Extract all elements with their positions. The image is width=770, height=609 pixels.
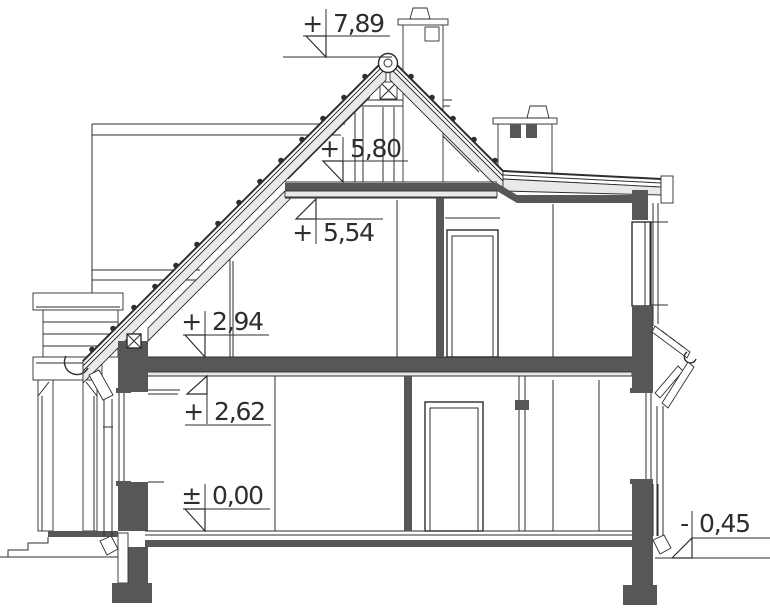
entrance-steps — [8, 537, 48, 557]
ground-floor-slab — [145, 531, 632, 547]
attic-interior — [436, 198, 498, 357]
chimney-cap — [410, 8, 430, 19]
left-wall — [116, 334, 148, 531]
level-marker-ridge: + 7,89 — [283, 9, 392, 57]
ring-beam — [632, 190, 648, 220]
cross-section-drawing: + 7,89 + 5,80 + 5,54 + 2,94 + 2,62 ± 0,0… — [0, 0, 770, 609]
ridge-tile — [379, 54, 398, 73]
partition-wall — [436, 198, 444, 357]
footing — [623, 585, 657, 605]
partition-wall — [404, 376, 412, 531]
roof-fascia — [661, 176, 673, 203]
level-sign: + — [302, 9, 322, 38]
perimeter-insulation — [118, 533, 128, 583]
cross-section-page: + 7,89 + 5,80 + 5,54 + 2,94 + 2,62 ± 0,0… — [0, 0, 770, 609]
level-sign: - — [680, 509, 688, 538]
level-marker-collar-beam: + 5,80 — [319, 134, 408, 182]
level-value: 7,89 — [333, 9, 384, 38]
level-marker-ground-floor: ± 0,00 — [181, 481, 270, 531]
right-window — [630, 388, 653, 484]
left-porch — [33, 293, 123, 531]
level-value: 5,54 — [323, 218, 374, 247]
floor-slab — [140, 357, 632, 376]
level-sign: + — [319, 134, 339, 163]
level-value: 0,45 — [699, 509, 750, 538]
level-sign: + — [292, 218, 312, 247]
door-in-section — [519, 376, 525, 531]
flue-opening — [510, 124, 521, 138]
level-value: 5,80 — [350, 134, 401, 163]
left-window — [116, 388, 131, 486]
ground-door — [425, 402, 483, 531]
level-sign: + — [181, 307, 201, 336]
level-sign: + — [183, 397, 203, 426]
chimney-cap — [527, 106, 549, 118]
porch-post — [83, 380, 97, 531]
door-lintel — [515, 400, 529, 410]
level-value: 2,94 — [212, 307, 263, 336]
attic-window — [632, 222, 651, 306]
level-value: 0,00 — [212, 481, 263, 510]
attic-door — [447, 230, 498, 357]
level-marker-ground-ceiling: + 2,62 — [183, 376, 271, 426]
level-value: 2,62 — [214, 397, 265, 426]
chimney-right — [493, 106, 557, 174]
level-marker-upper-floor: + 2,94 — [181, 307, 269, 357]
terrain — [0, 557, 770, 558]
level-marker-terrain: - 0,45 — [672, 509, 770, 558]
porch-post — [38, 380, 53, 531]
ground-interior — [404, 376, 529, 531]
downpipe-shoe — [100, 536, 118, 555]
footing — [112, 583, 152, 603]
level-marker-attic-ceiling: + 5,54 — [292, 199, 383, 247]
flue-vent — [425, 27, 439, 41]
downpipe-shoe — [653, 535, 671, 554]
level-sign: ± — [181, 481, 201, 510]
flue-opening — [526, 124, 537, 138]
